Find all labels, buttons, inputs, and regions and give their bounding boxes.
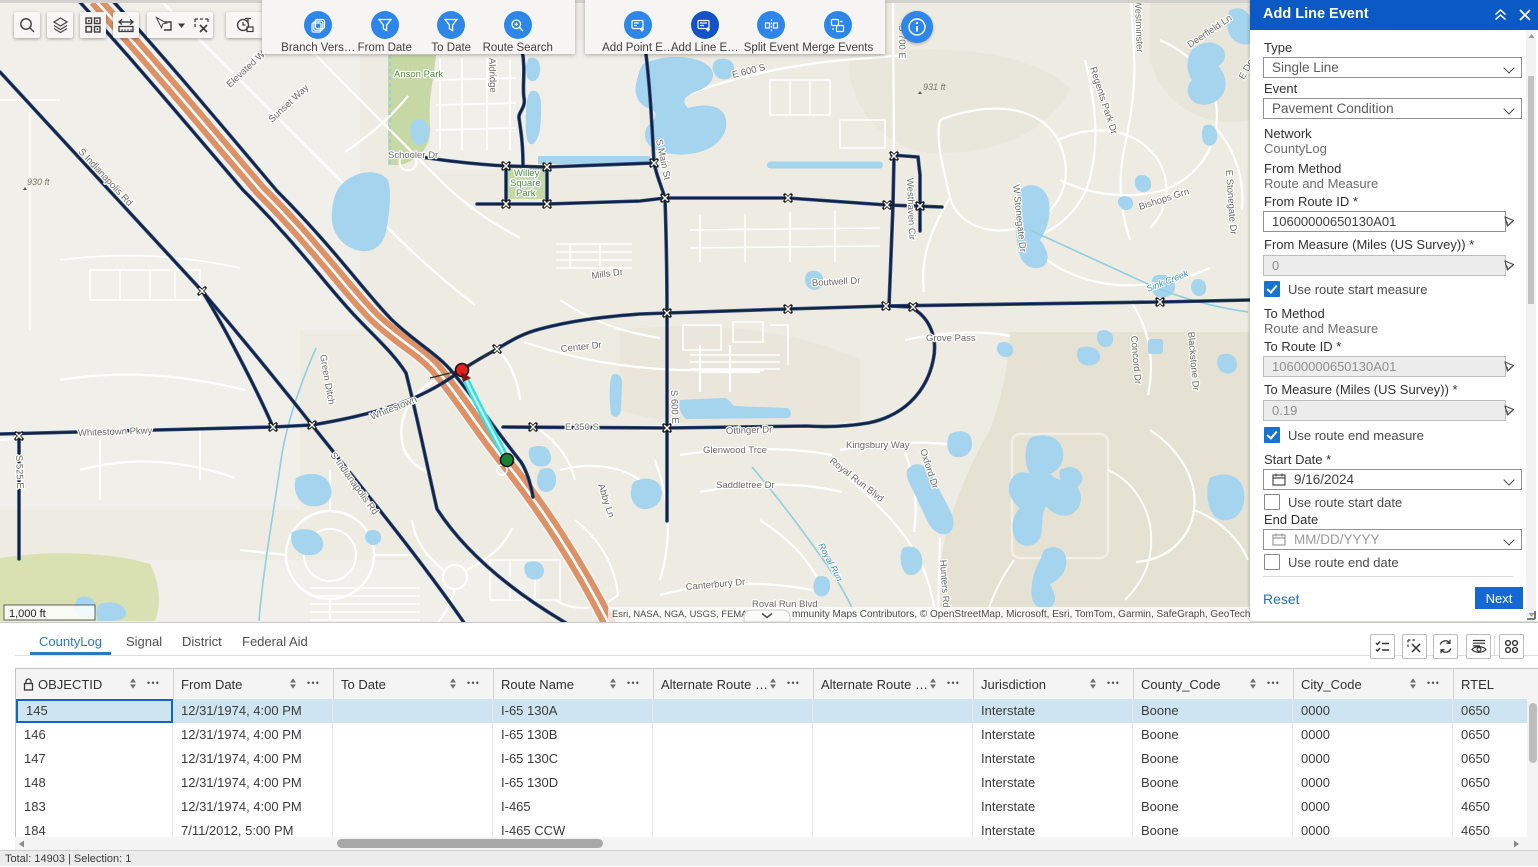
svg-text:1,000 ft: 1,000 ft [9, 608, 46, 620]
svg-text:931 ft: 931 ft [923, 82, 946, 92]
svg-text:Westhaven Cir: Westhaven Cir [904, 178, 917, 240]
svg-text:Westminster: Westminster [1132, 0, 1145, 53]
svg-text:Kingsbury Way: Kingsbury Way [846, 440, 910, 451]
svg-text:S 600 E: S 600 E [668, 390, 680, 424]
svg-text:Anson Park: Anson Park [394, 69, 443, 80]
svg-text:Park: Park [516, 188, 536, 199]
svg-text:E 350 S: E 350 S [565, 422, 599, 433]
svg-text:Ottinger Dr: Ottinger Dr [726, 424, 773, 437]
svg-text:930 ft: 930 ft [27, 177, 50, 187]
svg-text:Esri, NASA, NGA, USGS, FEMA: Esri, NASA, NGA, USGS, FEMA [612, 608, 748, 619]
svg-text:Aldridge: Aldridge [486, 58, 498, 93]
svg-text:Saddletree Dr: Saddletree Dr [716, 480, 775, 491]
svg-text:mmunity Maps Contributors, © O: mmunity Maps Contributors, © OpenStreetM… [792, 609, 1264, 620]
svg-text:Schooler Dr: Schooler Dr [388, 150, 438, 161]
svg-text:Glenwood Trce: Glenwood Trce [703, 445, 767, 456]
svg-text:S 525 E: S 525 E [13, 455, 25, 489]
svg-text:Grove Pass: Grove Pass [926, 333, 976, 344]
